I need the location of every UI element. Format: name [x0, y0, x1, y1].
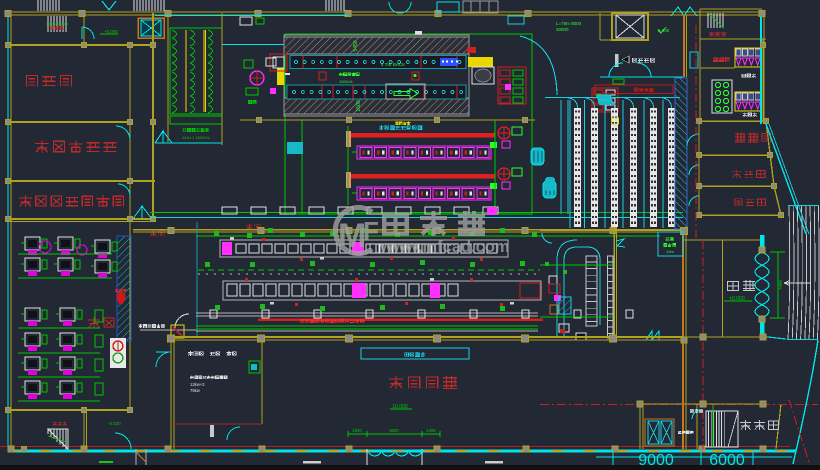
svg-text:1200×6: 1200×6	[339, 79, 353, 84]
svg-text:AHU-1 18000m: AHU-1 18000m	[182, 135, 210, 140]
svg-text:4 TIE BACK: 4 TIE BACK	[381, 62, 405, 67]
svg-text:30000: 30000	[556, 27, 569, 32]
svg-text:12kw+2: 12kw+2	[190, 382, 205, 387]
svg-text:+0.000: +0.000	[104, 29, 118, 34]
svg-text:5450: 5450	[353, 40, 359, 51]
svg-text:F: F	[363, 216, 379, 246]
svg-text:7000: 7000	[778, 279, 783, 290]
svg-text:1500: 1500	[352, 428, 362, 433]
svg-text:10m: 10m	[666, 249, 674, 254]
svg-text:75kw: 75kw	[190, 388, 201, 393]
svg-text:6000: 6000	[709, 452, 745, 465]
svg-text:1495: 1495	[426, 428, 436, 433]
svg-text:L=78m 8000: L=78m 8000	[556, 21, 582, 26]
svg-text:www.mfcad.com: www.mfcad.com	[379, 238, 510, 256]
svg-text:1500: 1500	[356, 100, 362, 111]
svg-text:9000: 9000	[638, 452, 674, 465]
svg-text:5000: 5000	[389, 428, 399, 433]
svg-text:-0.020: -0.020	[108, 421, 121, 426]
